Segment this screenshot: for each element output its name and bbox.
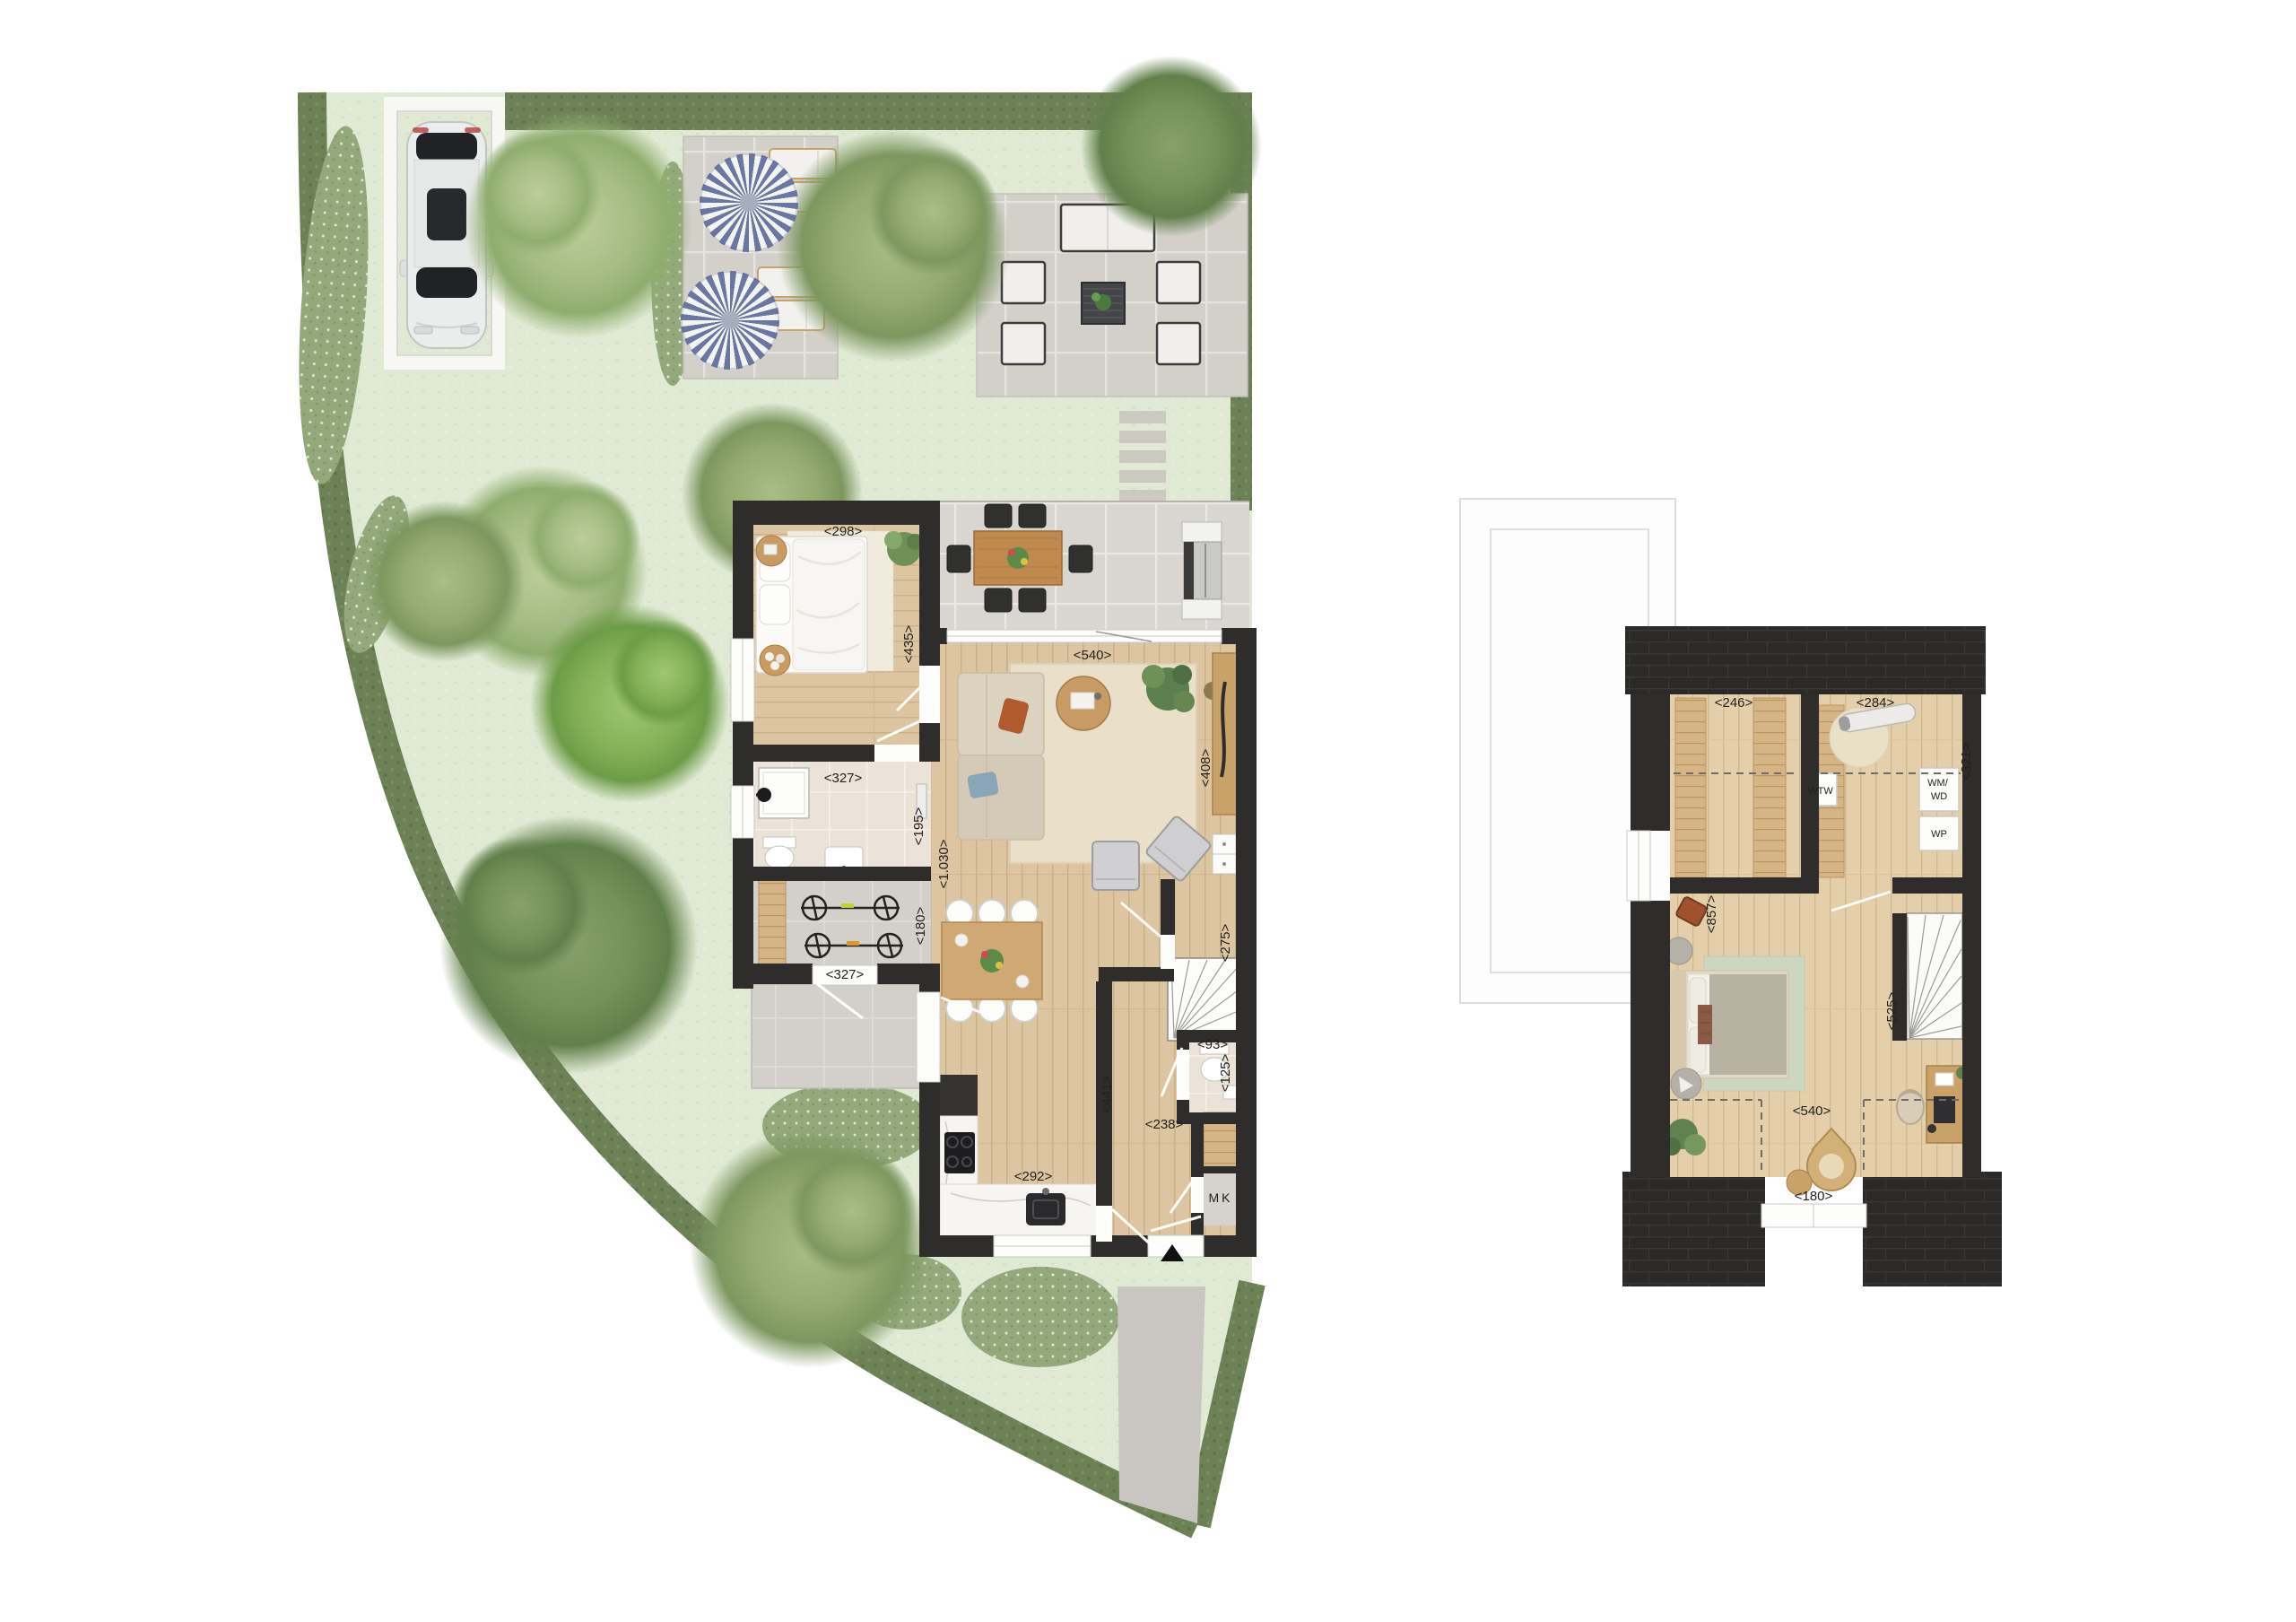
sideboard: [1213, 653, 1238, 815]
dim-bathroom-width: <327>: [824, 771, 863, 786]
kitchen-sink: [1026, 1188, 1065, 1225]
first-floor-plan: <246> <284> <321> <857> <540> <525> <180…: [1460, 499, 2002, 1286]
tall-cabinet: [940, 1075, 978, 1116]
dim-laundry-width: <284>: [1857, 695, 1895, 711]
wm-wd-unit: [1919, 768, 1959, 811]
cabinet: [1213, 834, 1236, 874]
tree: [1081, 56, 1262, 237]
attic-storage: [1753, 698, 1786, 877]
stairs: [1907, 913, 1962, 1039]
coffee-table: [1057, 676, 1110, 730]
attic-storage: [1675, 698, 1706, 877]
wardrobe: [759, 879, 786, 967]
toilet-icon: [763, 837, 796, 869]
tree: [465, 110, 692, 338]
sofa: [958, 673, 1044, 840]
counter: [940, 1184, 1103, 1236]
parasol-icon: [700, 153, 798, 252]
side-porch: [752, 984, 940, 1088]
bed: [1672, 971, 1788, 1078]
meter-cupboard-label: MK: [1209, 1190, 1233, 1205]
dim-laundry-depth: <321>: [1959, 742, 1974, 780]
tree: [439, 815, 698, 1074]
bbq-grill: [1182, 522, 1222, 619]
dim-hall-width: <238>: [1145, 1117, 1184, 1132]
dim-bedroom-depth: <525>: [1884, 991, 1900, 1030]
dim-bedroom-depth: <435>: [901, 624, 917, 663]
tree: [363, 501, 525, 662]
roof-hatch: [1863, 1172, 2002, 1286]
floorplan-page: <298> <435> <540> <1.030> <408> <275> <3…: [0, 0, 2296, 1622]
dim-living-depth: <1.030>: [936, 839, 952, 888]
front-path: [1118, 1286, 1205, 1523]
dim-wc-depth: <125>: [1218, 1053, 1233, 1092]
tree: [530, 604, 729, 803]
wtw-label: WTW: [1808, 786, 1833, 797]
dim-storage-depth: <180>: [913, 906, 928, 945]
dim-bedroom-width: <540>: [1793, 1103, 1831, 1119]
covered-terrace: [937, 501, 1249, 642]
tree: [690, 1128, 930, 1368]
dim-landing-depth: <857>: [1704, 894, 1719, 933]
cooktop: [944, 1132, 975, 1173]
shrub-bed: [961, 1267, 1119, 1367]
dim-attic-left-width: <246>: [1715, 695, 1753, 711]
flower-tray: [760, 645, 790, 676]
stairs: [1168, 958, 1241, 1041]
dim-terrace-doors: <540>: [1074, 648, 1112, 663]
floorplan-drawing: <298> <435> <540> <1.030> <408> <275> <3…: [0, 0, 2296, 1622]
dim-kitchen-width: <292>: [1014, 1169, 1053, 1184]
door: [917, 992, 940, 1082]
parasol-icon: [681, 271, 779, 370]
dim-dormer-width: <180>: [1795, 1189, 1833, 1204]
coffee-table: [1082, 283, 1125, 324]
dim-hall-depth: <441>: [1100, 1075, 1115, 1113]
tree: [777, 129, 1010, 362]
roof-hatch: [1622, 1172, 1765, 1286]
dim-wc-width: <93>: [1197, 1037, 1228, 1052]
armchair: [1092, 842, 1139, 890]
dim-storage-width: <327>: [826, 967, 865, 982]
desk-chair: [1897, 1090, 1924, 1124]
dim-bathroom-depth: <195>: [911, 807, 926, 845]
wp-label: WP: [1931, 829, 1947, 840]
roof-hatch: [1625, 626, 1986, 694]
dim-bedroom-width: <298>: [824, 524, 863, 539]
dim-hall-upper: <275>: [1218, 923, 1233, 962]
dim-living-cabinet-wall: <408>: [1198, 748, 1213, 787]
